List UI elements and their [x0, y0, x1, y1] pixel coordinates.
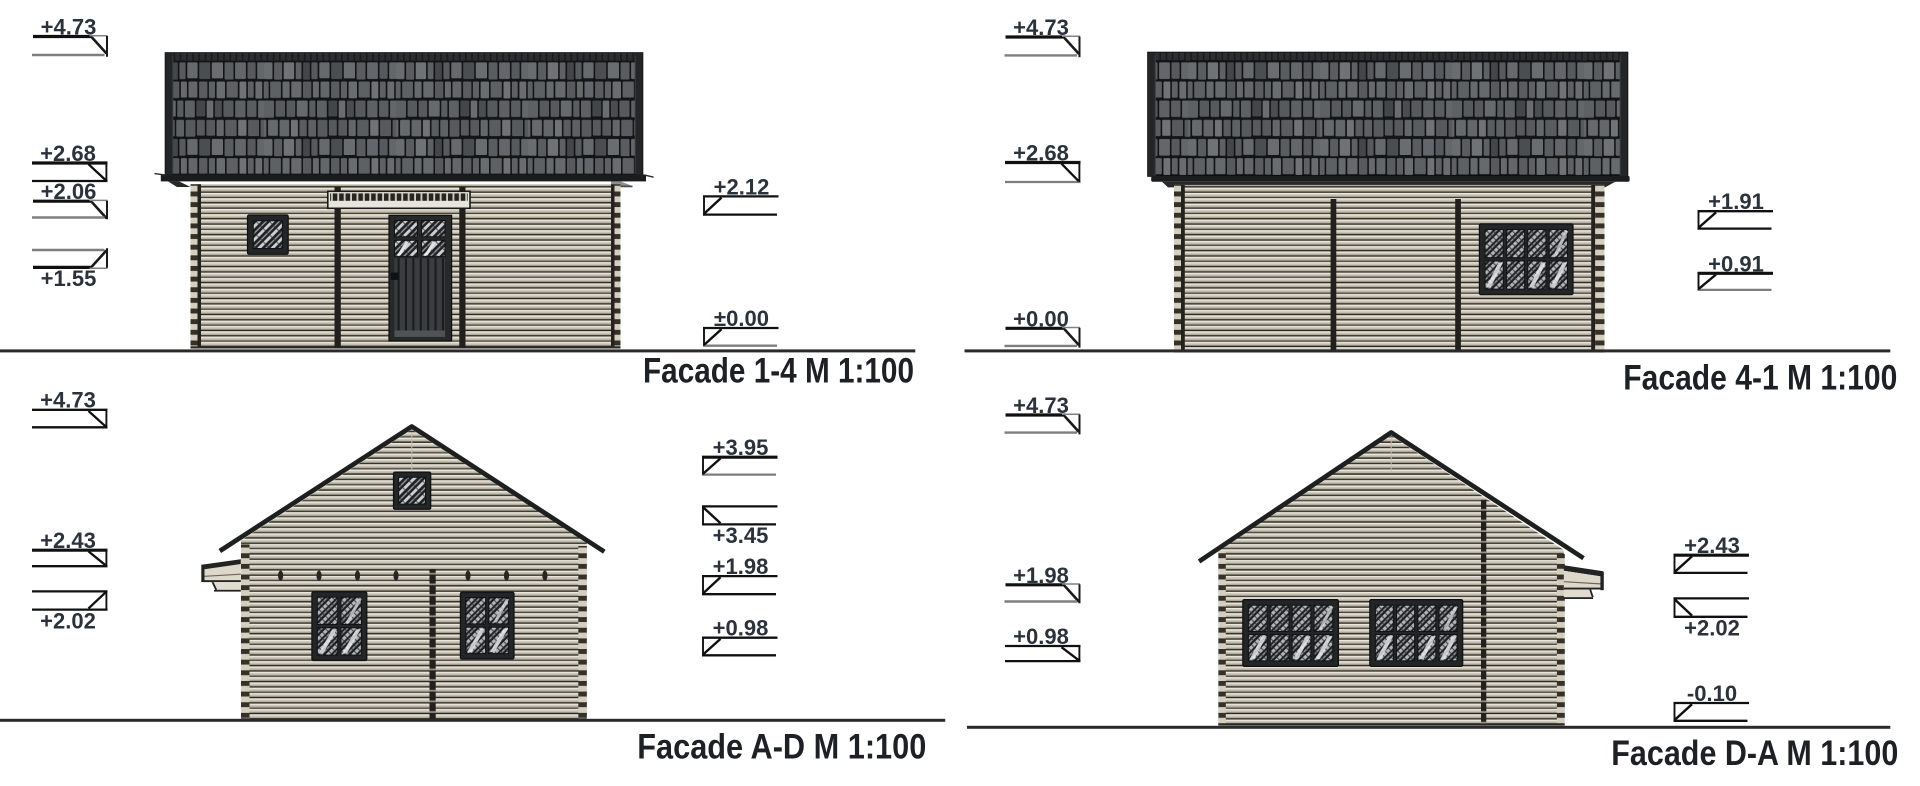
svg-text:+1.98: +1.98 — [713, 554, 769, 579]
svg-text:Facade D-A M 1:100: Facade D-A M 1:100 — [1611, 733, 1898, 773]
svg-text:+2.43: +2.43 — [40, 528, 96, 553]
svg-text:Facade A-D M 1:100: Facade A-D M 1:100 — [637, 726, 926, 766]
svg-text:+2.06: +2.06 — [41, 179, 97, 204]
svg-text:+1.98: +1.98 — [1013, 563, 1069, 588]
svg-text:Facade 4-1 M 1:100: Facade 4-1 M 1:100 — [1623, 358, 1897, 398]
svg-text:+2.12: +2.12 — [714, 174, 770, 199]
svg-text:+0.98: +0.98 — [1013, 624, 1069, 649]
svg-text:+4.73: +4.73 — [41, 15, 97, 40]
svg-text:+0.98: +0.98 — [713, 616, 769, 641]
svg-text:+0.00: +0.00 — [1013, 306, 1069, 331]
svg-text:+1.91: +1.91 — [1708, 189, 1764, 214]
svg-text:+0.91: +0.91 — [1708, 251, 1764, 276]
svg-text:Facade 1-4 M 1:100: Facade 1-4 M 1:100 — [643, 350, 914, 390]
svg-text:+2.68: +2.68 — [40, 141, 96, 166]
svg-text:+3.45: +3.45 — [713, 523, 769, 548]
svg-text:+4.73: +4.73 — [40, 388, 96, 413]
svg-text:+2.68: +2.68 — [1013, 140, 1069, 165]
svg-text:±0.00: ±0.00 — [714, 306, 769, 331]
svg-text:+2.02: +2.02 — [40, 608, 96, 633]
svg-text:+4.73: +4.73 — [1013, 393, 1069, 418]
svg-text:+2.02: +2.02 — [1684, 616, 1740, 641]
svg-text:+1.55: +1.55 — [41, 266, 97, 291]
svg-text:+3.95: +3.95 — [713, 435, 769, 460]
svg-text:+4.73: +4.73 — [1013, 15, 1069, 40]
svg-text:+2.43: +2.43 — [1684, 533, 1740, 558]
svg-text:-0.10: -0.10 — [1687, 681, 1737, 706]
